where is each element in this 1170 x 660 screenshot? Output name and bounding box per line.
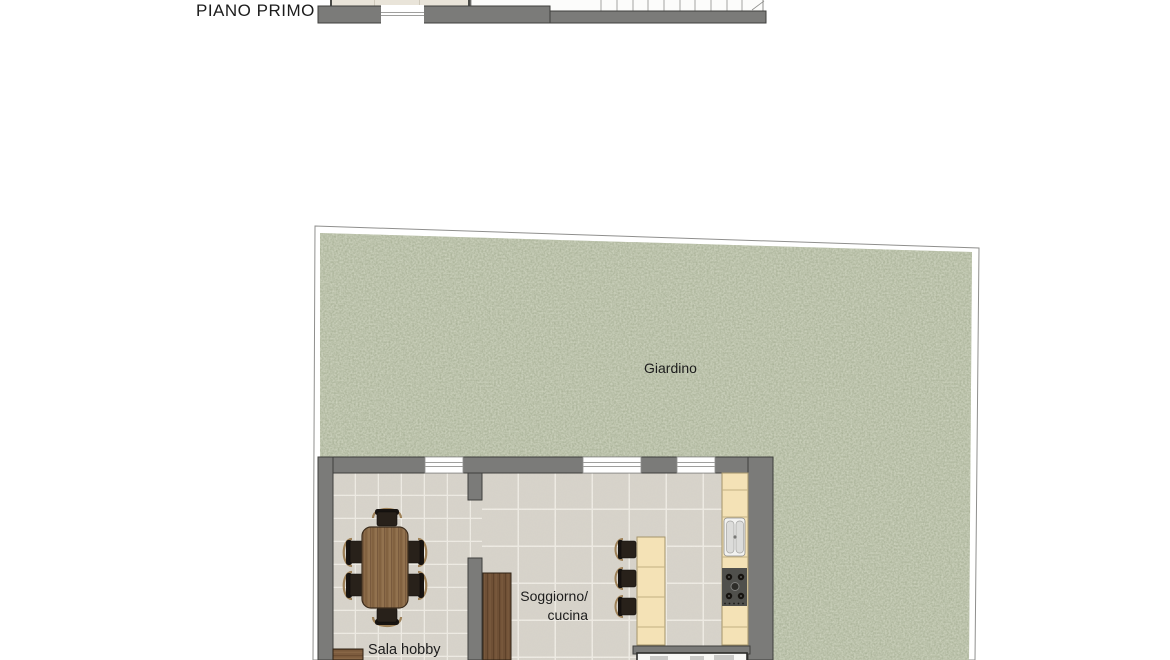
wall-right <box>748 457 773 660</box>
stool-2 <box>616 568 637 589</box>
dining-table <box>362 527 408 608</box>
chair-right-2 <box>406 572 426 599</box>
bathroom-fixture <box>690 656 704 660</box>
upper-floor-tile-line <box>374 0 375 6</box>
floorplan-drawing <box>0 0 1170 660</box>
upper-wall-band-left <box>318 6 550 23</box>
garden-label: Giardino <box>644 360 697 376</box>
chair-right-1 <box>406 539 426 566</box>
sideboard <box>333 649 363 660</box>
building <box>318 457 773 660</box>
stool-3 <box>616 596 637 617</box>
kitchen-counter <box>722 473 748 645</box>
upper-wall-opening <box>381 5 424 24</box>
gas-hob <box>722 568 747 606</box>
window-3 <box>677 457 715 473</box>
bathroom-fragment <box>633 646 750 660</box>
chair-top <box>373 509 401 526</box>
upper-wall-edge <box>330 0 332 6</box>
kitchen-island <box>637 537 665 645</box>
window-1 <box>425 457 463 473</box>
floorplan-page: PIANO PRIMO Giardino Sala hobby Soggiorn… <box>0 0 1170 660</box>
kitchen-sink <box>724 518 745 556</box>
window-2 <box>583 457 641 473</box>
bathroom-fixture <box>714 655 734 660</box>
wall-left <box>318 457 333 660</box>
soggiorno-line2: cucina <box>548 607 588 623</box>
upper-floor-fragment <box>318 0 766 24</box>
chair-left-1 <box>344 539 364 566</box>
partition-stub-top <box>468 473 482 500</box>
stool-1 <box>616 539 637 560</box>
room-label-soggiorno-cucina: Soggiorno/cucina <box>468 587 588 624</box>
soggiorno-line1: Soggiorno/ <box>520 588 588 604</box>
upper-wall-band-right <box>550 11 766 23</box>
floor-title: PIANO PRIMO <box>196 1 315 21</box>
chair-left-2 <box>344 572 364 599</box>
bathroom-fixture <box>650 656 668 660</box>
bar-stools <box>616 539 637 617</box>
room-label-sala-hobby: Sala hobby <box>368 642 441 658</box>
chair-bottom <box>373 608 401 626</box>
